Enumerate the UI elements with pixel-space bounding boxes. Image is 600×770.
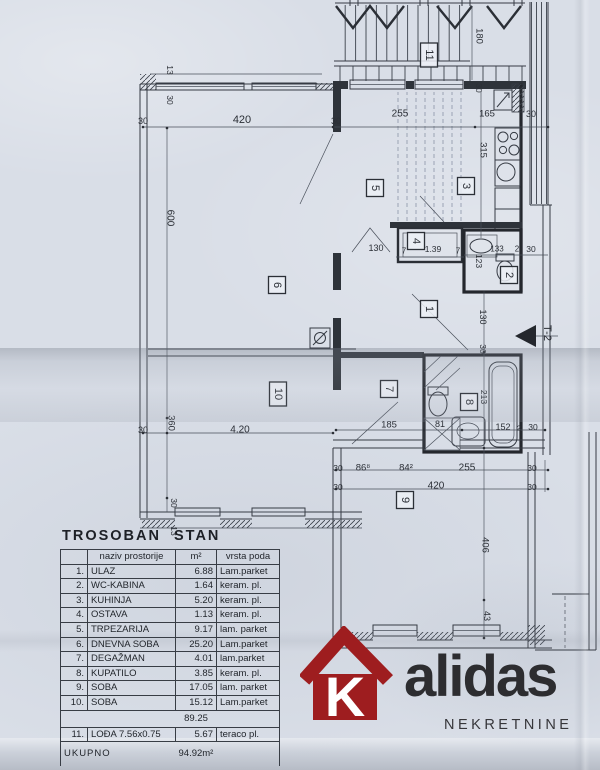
table-cell: 3.85 [176,666,217,681]
table-cell: KUPATILO [88,666,176,681]
table-cell: 6.88 [176,564,217,579]
table-cell: 5.20 [176,593,217,608]
table-row: 11.LOĐA 7.56x0.755.67teraco pl. [61,727,280,742]
room-number-label: 6 [269,277,286,294]
table-cell: 89.25 [176,710,217,727]
svg-text:2: 2 [503,272,515,278]
room-number-label: 11 [421,43,438,67]
table-cell: KUHINJA [88,593,176,608]
table-row: 3.KUHINJA5.20keram. pl. [61,593,280,608]
logo-letter: K [325,665,365,722]
living-room-walls [140,74,356,518]
table-cell: keram. pl. [217,608,280,623]
toilet-icon [428,387,448,416]
table-row: 8.KUPATILO3.85keram. pl. [61,666,280,681]
dimension-label: 2 [517,424,521,433]
table-cell: 10. [61,695,88,710]
table-cell: 5.67 [176,727,217,742]
table-cell: DNEVNA SOBA [88,637,176,652]
bathroom-area [333,352,521,452]
floor-plan-page: 13303042030255165301803031560013071.3971… [0,0,600,770]
dimension-label: 152 [495,422,510,432]
dimension-label: 255 [392,109,409,120]
table-row: 7.DEGAŽMAN4.01lam.parket [61,652,280,667]
dimension-label: 180 [474,28,485,44]
table-row: 2.WC-KABINA1.64keram. pl. [61,579,280,594]
table-row: 5.TRPEZARIJA9.17lam. parket [61,622,280,637]
table-cell: keram. pl. [217,666,280,681]
total-row: UKUPNO94.92m² [61,742,280,767]
table-cell: 6. [61,637,88,652]
table-cell: 3. [61,593,88,608]
fridge-icon [494,90,512,110]
table-cell: 17.05 [176,681,217,696]
dimension-label: 133 [490,245,504,254]
dimension-label: 30 [165,95,175,105]
dimension-label: 7 [402,247,407,256]
table-cell: WC-KABINA [88,579,176,594]
svg-text:6: 6 [271,282,283,288]
table-cell: Lam.parket [217,637,280,652]
table-cell: UKUPNO [61,742,176,767]
room-number-label: 3 [458,178,475,195]
dimension-label: 2 [515,245,520,254]
bath-sink-icon [452,417,485,446]
dimension-label: 30 [333,463,343,473]
table-cell: lam.parket [217,652,280,667]
table-row: 9.SOBA17.05lam. parket [61,681,280,696]
table-cell: SOBA [88,681,176,696]
table-header-row: naziv prostorije m² vrsta poda [61,550,280,565]
room-number-label: 9 [397,492,414,509]
table-cell: 2. [61,579,88,594]
room-number-label: 7 [381,381,398,398]
table-cell: 1. [61,564,88,579]
plan-title: TROSOBAN STAN [62,528,280,544]
logo-text: alidas [404,648,556,706]
svg-text:7: 7 [383,386,395,392]
balcony-railing [530,2,552,205]
col-area: m² [176,550,217,565]
dimension-label: 360 [166,415,177,431]
col-floor: vrsta poda [217,550,280,565]
dimension-label: 30 [331,116,341,126]
dimension-label: T-2 [541,325,553,341]
table-cell: OSTAVA [88,608,176,623]
stove-icon [495,128,520,160]
dimension-label: 30 [474,83,484,93]
dimension-label: 4.20 [230,425,250,436]
dimension-label: 30 [527,482,537,492]
table-cell [61,710,176,727]
table-cell: lam. parket [217,622,280,637]
table-cell: keram. pl. [217,593,280,608]
dimension-label: 255 [459,463,476,474]
table-row: 10.SOBA15.12Lam.parket [61,695,280,710]
dimension-label: 420 [428,481,445,492]
dimension-label: 81 [435,419,445,429]
table-cell: teraco pl. [217,727,280,742]
table-cell: lam. parket [217,681,280,696]
room-table: TROSOBAN STAN naziv prostorije m² vrsta … [60,528,280,766]
svg-text:11: 11 [423,49,435,60]
svg-text:3: 3 [460,183,472,189]
dimension-label: 165 [479,109,495,120]
dimension-label: 7 [456,247,461,256]
dimension-label: 315 [478,142,489,158]
dimension-label: 213 [479,390,489,404]
svg-text:4: 4 [410,238,422,244]
table-cell: 8. [61,666,88,681]
table-cell: 9. [61,681,88,696]
col-num [61,550,88,565]
table-cell: 9.17 [176,622,217,637]
svg-text:8: 8 [463,399,475,405]
svg-text:1: 1 [423,306,435,312]
dimension-label: 13 [165,65,175,75]
room-number-label: 10 [270,382,287,406]
section-arrow-icon [515,325,536,347]
dimension-label: 130 [368,243,383,253]
dimension-label: 123 [474,254,484,268]
table-cell: LOĐA 7.56x0.75 [88,727,176,742]
dimension-label: 30 [138,116,148,126]
kitchen-sink-icon [495,160,520,186]
col-name: naziv prostorije [88,550,176,565]
dimension-label: 84² [399,463,413,474]
dimension-label: 30 [138,425,148,435]
subtotal-row: 89.25 [61,710,280,727]
table-cell: SOBA [88,695,176,710]
ceiling-symbol-icon [310,328,330,348]
table-cell: 11. [61,727,88,742]
dimension-label: 30 [528,422,538,432]
dimension-label: 420 [233,114,251,126]
house-icon: K [300,626,394,722]
room-number-label: 5 [367,180,384,197]
dimension-label: 43 [482,611,492,621]
room10-windows [140,508,362,528]
dimension-label: 86⁸ [356,463,371,474]
bathtub-icon [489,362,517,447]
svg-text:9: 9 [399,497,411,503]
dimension-label: 30 [478,344,488,354]
dimension-label: 30 [527,463,537,473]
table-cell: 4. [61,608,88,623]
dimension-label: 30 [526,244,536,254]
table-cell: 15.12 [176,695,217,710]
dimension-label: 30 [333,482,343,492]
room-number-label: 4 [408,233,425,250]
svg-text:10: 10 [272,388,284,400]
kitchen-cabinet [495,188,520,209]
table-cell: 7. [61,652,88,667]
table-cell: 1.13 [176,608,217,623]
kalidas-logo: K alidas NEKRETNINE [298,622,598,758]
room-number-label: 1 [421,301,438,318]
logo-subtitle: NEKRETNINE [444,717,572,733]
dimension-label: 185 [381,420,397,431]
rooms-table: naziv prostorije m² vrsta poda 1.ULAZ6.8… [60,549,280,766]
table-cell: DEGAŽMAN [88,652,176,667]
table-cell: 25.20 [176,637,217,652]
table-cell: ULAZ [88,564,176,579]
table-cell: 94.92m² [176,742,280,767]
table-row: 1.ULAZ6.88Lam.parket [61,564,280,579]
table-cell: Lam.parket [217,564,280,579]
dimension-label: 30 [526,109,536,119]
table-cell: Lam.parket [217,695,280,710]
dimension-label: 406 [480,537,491,553]
dimension-label: 130 [478,309,488,324]
dimension-label: 30 [169,498,179,508]
dimension-label: 1.39 [425,244,442,254]
table-cell: TRPEZARIJA [88,622,176,637]
table-row: 6.DNEVNA SOBA25.20Lam.parket [61,637,280,652]
table-cell: 4.01 [176,652,217,667]
table-cell: 1.64 [176,579,217,594]
dimension-label: 600 [165,210,176,227]
room-number-label: 2 [501,267,518,284]
table-cell: 5. [61,622,88,637]
table-row: 4.OSTAVA1.13keram. pl. [61,608,280,623]
table-cell [217,710,280,727]
svg-text:5: 5 [369,185,381,191]
room-number-label: 8 [461,394,478,411]
table-cell: keram. pl. [217,579,280,594]
